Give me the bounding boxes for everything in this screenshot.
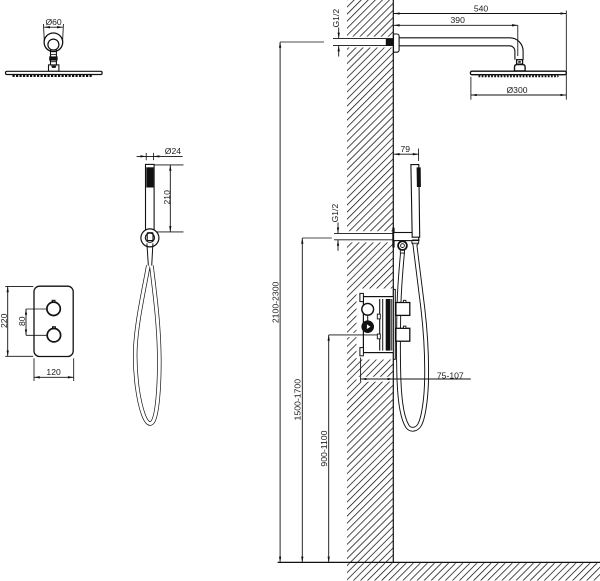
svg-text:Ø60: Ø60 [45, 17, 61, 27]
svg-text:80: 80 [17, 316, 27, 326]
svg-text:G1/2: G1/2 [330, 204, 340, 223]
svg-text:1500-1700: 1500-1700 [293, 379, 303, 421]
svg-text:75-107: 75-107 [437, 370, 464, 380]
svg-text:G1/2: G1/2 [331, 9, 341, 28]
svg-text:900-1100: 900-1100 [319, 430, 329, 466]
svg-text:390: 390 [451, 15, 466, 25]
svg-text:Ø24: Ø24 [165, 146, 181, 156]
svg-text:540: 540 [474, 3, 489, 13]
svg-text:120: 120 [46, 367, 61, 377]
svg-text:Ø300: Ø300 [506, 85, 527, 95]
svg-text:220: 220 [0, 313, 9, 328]
svg-text:210: 210 [162, 190, 172, 205]
svg-text:79: 79 [401, 144, 411, 154]
svg-text:2100-2300: 2100-2300 [270, 281, 280, 323]
